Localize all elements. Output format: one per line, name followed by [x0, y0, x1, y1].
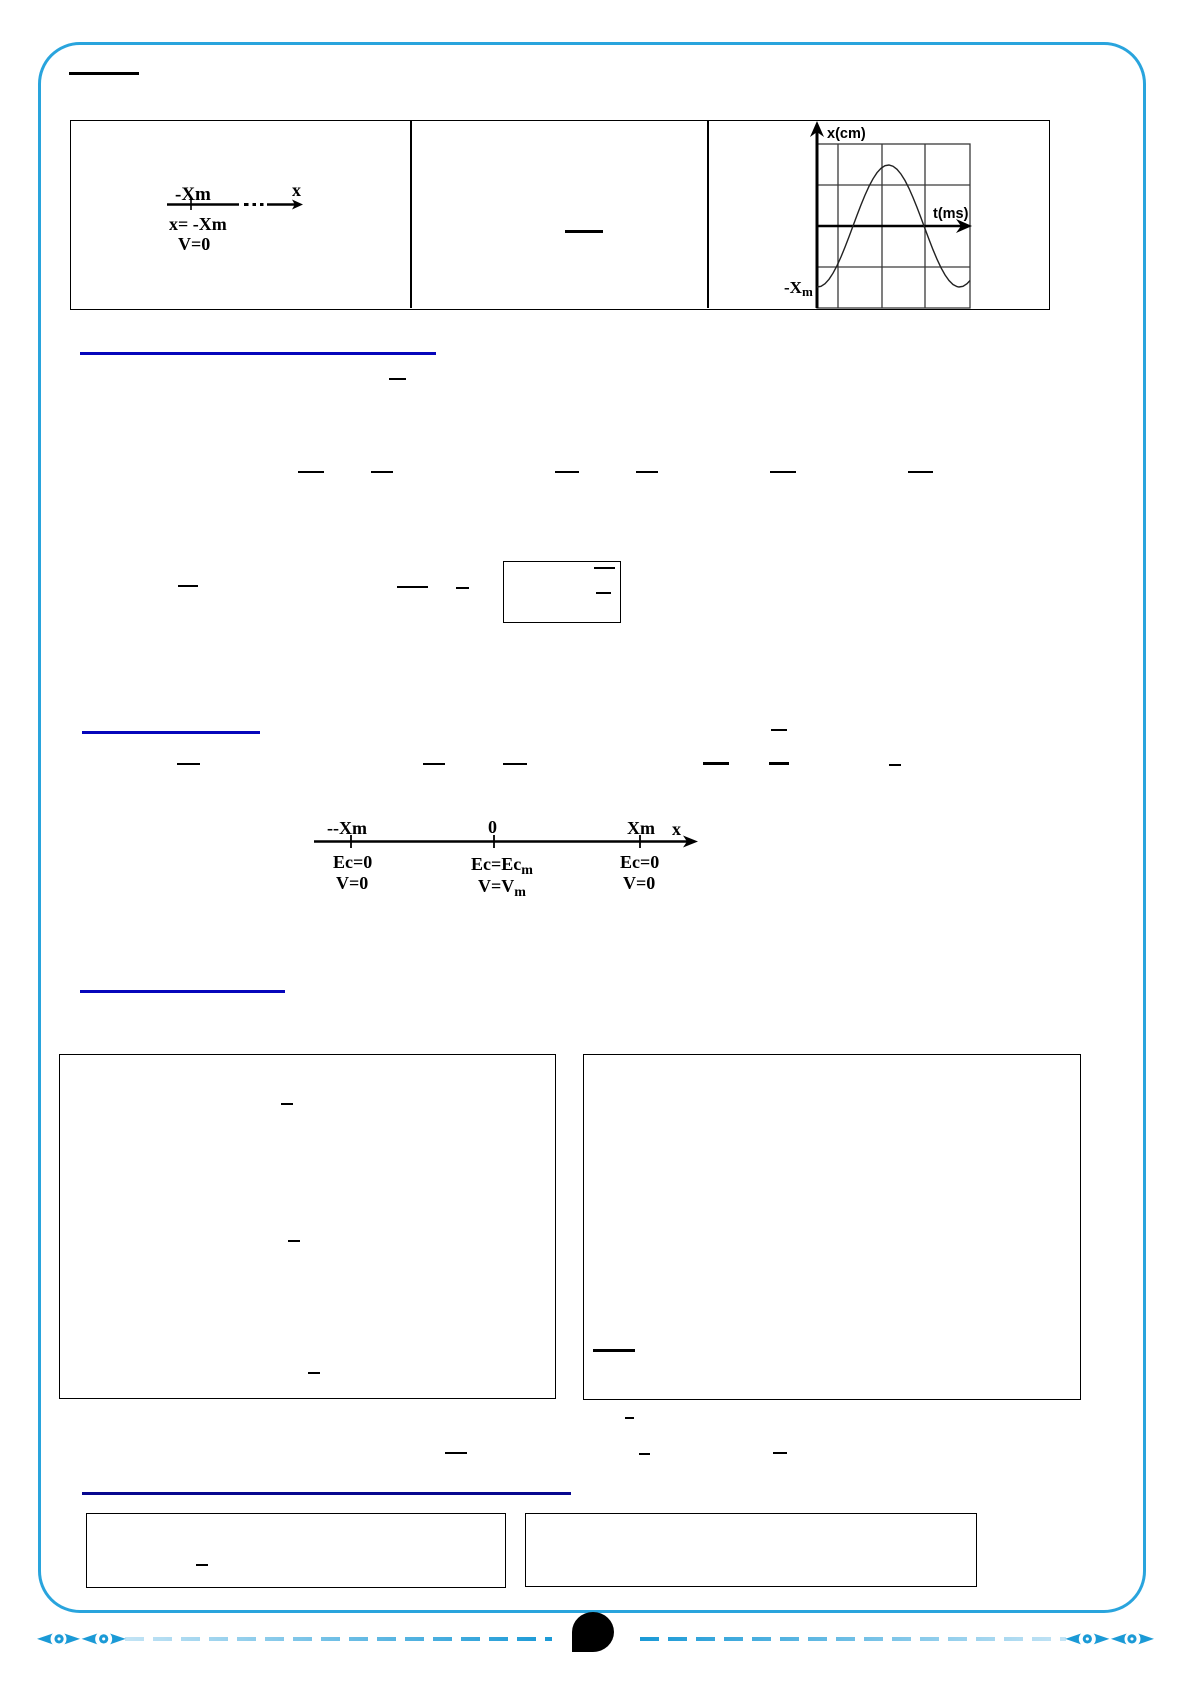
svg-text:x= -Xm: x= -Xm	[169, 214, 227, 234]
svg-text:Ec=0: Ec=0	[333, 852, 372, 872]
svg-text:V=0: V=0	[623, 873, 655, 893]
svg-text:Ec=Ecm: Ec=Ecm	[471, 854, 533, 878]
svg-text:Xm: Xm	[627, 818, 655, 838]
svg-text:-Xm: -Xm	[784, 278, 813, 299]
svg-text:x: x	[672, 819, 681, 839]
svg-text:V=0: V=0	[178, 234, 210, 254]
svg-text:x: x	[292, 180, 301, 200]
svg-text:V=Vm: V=Vm	[478, 876, 526, 900]
svg-text:0: 0	[488, 817, 497, 837]
svg-text:-Xm: -Xm	[175, 184, 211, 205]
svg-text:t(ms): t(ms)	[933, 206, 969, 222]
svg-text:x(cm): x(cm)	[827, 126, 866, 142]
svg-text:--Xm: --Xm	[327, 818, 367, 838]
svg-text:Ec=0: Ec=0	[620, 852, 659, 872]
svg-text:V=0: V=0	[336, 873, 368, 893]
